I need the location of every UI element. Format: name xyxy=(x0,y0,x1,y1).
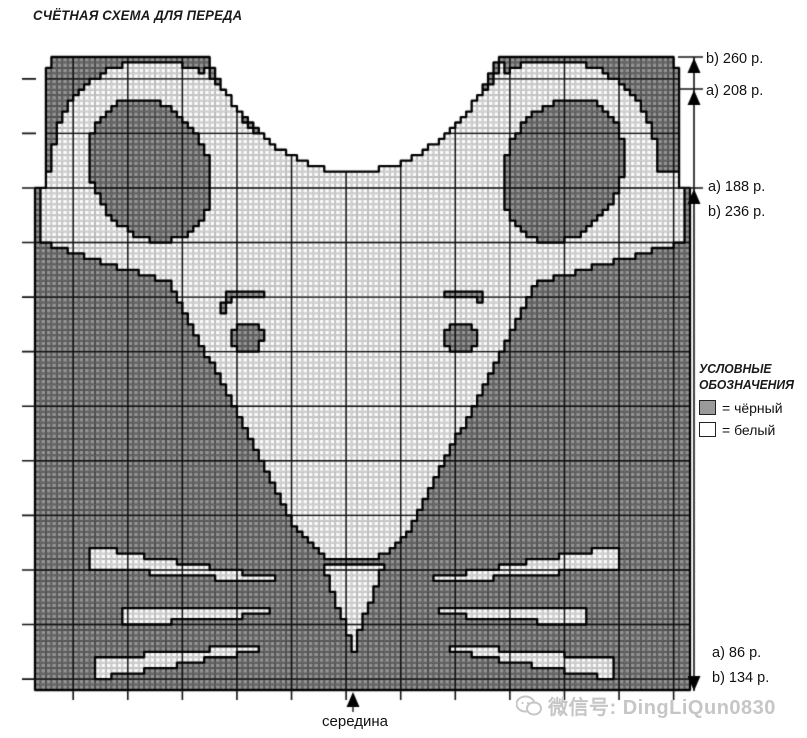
center-label: середина xyxy=(310,713,400,730)
legend: УСЛОВНЫЕ ОБОЗНАЧЕНИЯ = чёрный = белый xyxy=(699,361,805,437)
legend-item-white: = белый xyxy=(699,422,805,437)
mark-a86: a) 86 р. xyxy=(712,645,761,661)
mark-a188: a) 188 р. xyxy=(708,179,765,195)
legend-item-label: = белый xyxy=(722,422,775,438)
legend-item-label: = чёрный xyxy=(722,400,783,416)
mark-a208: a) 208 р. xyxy=(706,83,763,99)
knitting-chart-page: СЧЁТНАЯ СХЕМА ДЛЯ ПЕРЕДА b) 260 р. a) 20… xyxy=(0,0,807,738)
page-title: СЧЁТНАЯ СХЕМА ДЛЯ ПЕРЕДА xyxy=(33,8,242,23)
mark-b260: b) 260 р. xyxy=(706,51,763,67)
watermark-text: 微信号: DingLiQun0830 xyxy=(548,691,776,720)
mark-b236: b) 236 р. xyxy=(708,204,765,220)
black-yarn-swatch-icon xyxy=(699,400,716,415)
knitting-chart-canvas xyxy=(0,0,807,738)
legend-title-line2: ОБОЗНАЧЕНИЯ xyxy=(699,377,802,393)
wechat-icon xyxy=(516,695,542,717)
watermark: 微信号: DingLiQun0830 xyxy=(516,691,776,720)
mark-b134: b) 134 р. xyxy=(712,670,769,686)
legend-item-black: = чёрный xyxy=(699,400,805,415)
white-yarn-swatch-icon xyxy=(699,422,716,437)
legend-title-line1: УСЛОВНЫЕ xyxy=(699,361,802,377)
